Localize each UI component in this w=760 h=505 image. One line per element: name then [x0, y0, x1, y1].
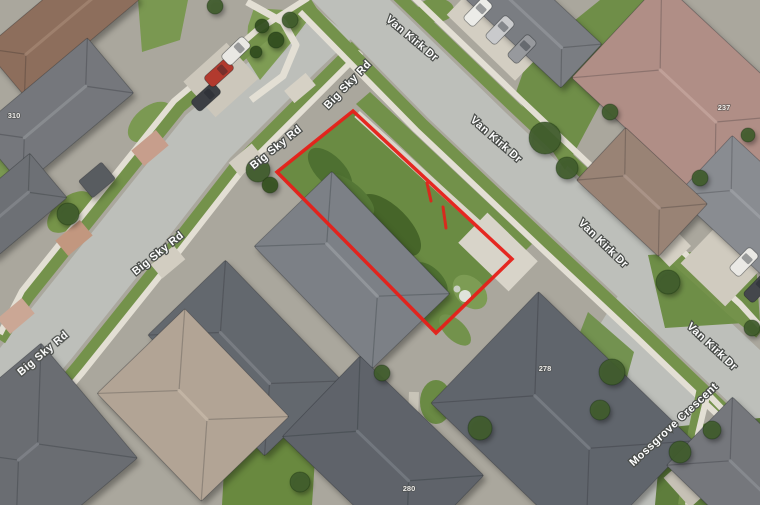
satellite-map-view[interactable]: 310237278280 Van Kirk DrVan Kirk DrVan K…: [0, 0, 760, 505]
tree: [250, 46, 262, 58]
tree: [656, 270, 680, 294]
yard-object: [454, 286, 461, 293]
house-number-278: 278: [539, 364, 552, 373]
house-number-237: 237: [718, 103, 731, 112]
tree: [744, 320, 760, 336]
house-number-280: 280: [403, 484, 416, 493]
tree: [602, 104, 618, 120]
tree: [529, 122, 561, 154]
tree: [282, 12, 298, 28]
tree: [703, 421, 721, 439]
tree: [468, 416, 492, 440]
tree: [590, 400, 610, 420]
tree: [255, 19, 269, 33]
tree: [556, 157, 578, 179]
tree: [57, 203, 79, 225]
tree: [290, 472, 310, 492]
house-number-310: 310: [8, 111, 21, 120]
tree: [669, 441, 691, 463]
tree: [741, 128, 755, 142]
tree: [599, 359, 625, 385]
map-canvas[interactable]: 310237278280 Van Kirk DrVan Kirk DrVan K…: [0, 0, 760, 505]
tree: [207, 0, 223, 14]
tree: [268, 32, 284, 48]
tree: [692, 170, 708, 186]
tree: [374, 365, 390, 381]
tree: [262, 177, 278, 193]
